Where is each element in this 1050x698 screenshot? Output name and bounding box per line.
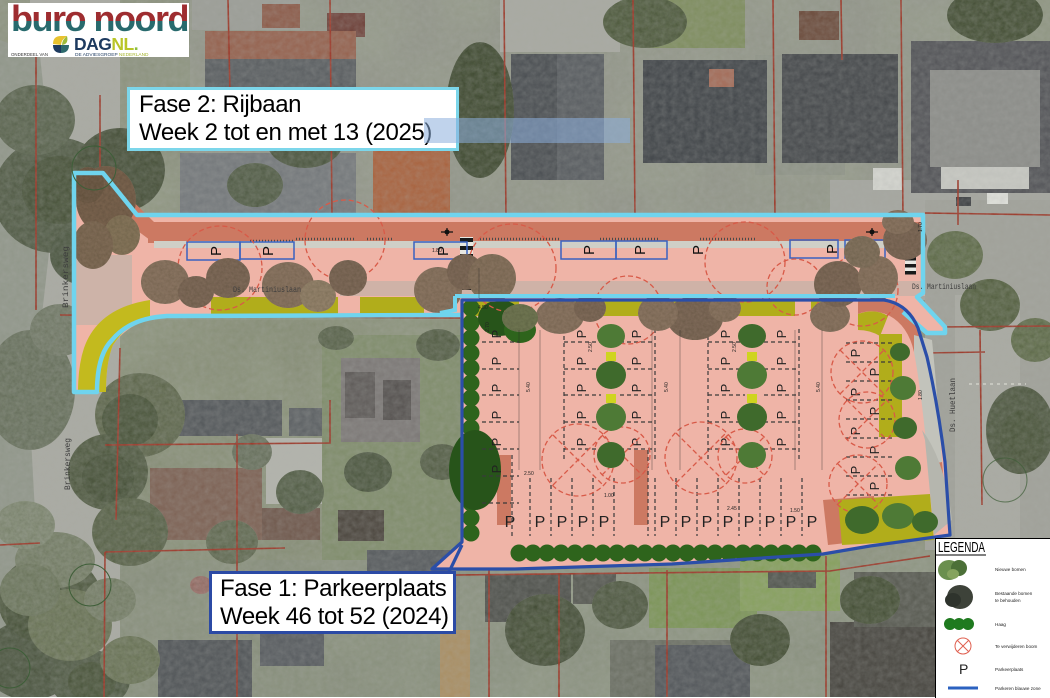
- svg-text:Haag: Haag: [995, 622, 1006, 627]
- svg-text:Parkeerplaats: Parkeerplaats: [995, 667, 1024, 672]
- svg-text:Bestaande bomen: Bestaande bomen: [995, 591, 1033, 596]
- svg-text:LEGENDA: LEGENDA: [938, 540, 985, 556]
- svg-text:Te verwijderen boom: Te verwijderen boom: [995, 644, 1038, 649]
- svg-text:P: P: [959, 661, 968, 677]
- svg-text:Parkeren blauwe zone: Parkeren blauwe zone: [995, 686, 1041, 691]
- svg-text:te behouden: te behouden: [995, 598, 1021, 603]
- svg-text:Nieuwe bomen: Nieuwe bomen: [995, 567, 1026, 572]
